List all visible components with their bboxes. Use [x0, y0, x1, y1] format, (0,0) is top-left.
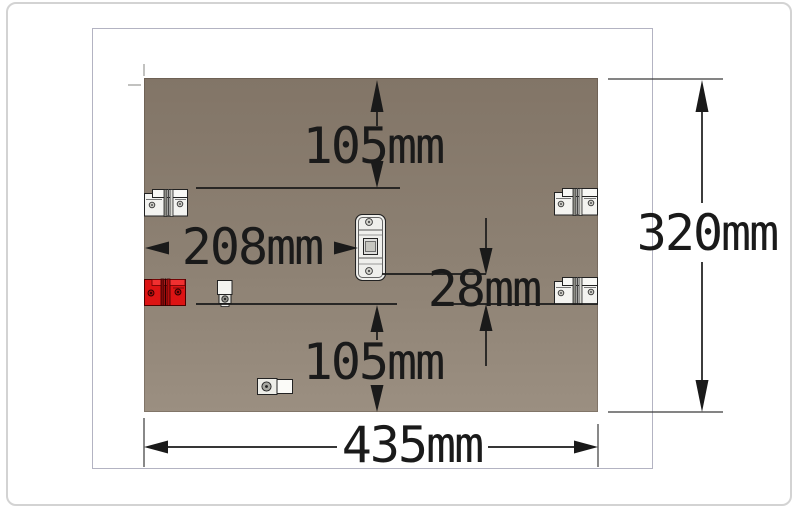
bottom-bracket-icon: [257, 378, 293, 395]
hinge-top-right-icon: [554, 188, 598, 216]
dim-panel-width-label: 435mm: [342, 420, 483, 470]
center-latch-icon: [355, 214, 386, 281]
dim-panel-height-label: 320mm: [637, 208, 778, 258]
small-bracket-icon: [217, 280, 233, 307]
hinge-mid-right-icon: [554, 277, 598, 305]
dim-latch-from-left-label: 208mm: [182, 222, 323, 272]
dim-hinge-gap-label: 28mm: [428, 264, 540, 314]
red-connector-icon: [144, 278, 186, 306]
hinge-top-left-icon: [144, 189, 188, 217]
dim-top-offset-label: 105mm: [303, 121, 444, 171]
dim-bottom-offset-label: 105mm: [303, 337, 444, 387]
